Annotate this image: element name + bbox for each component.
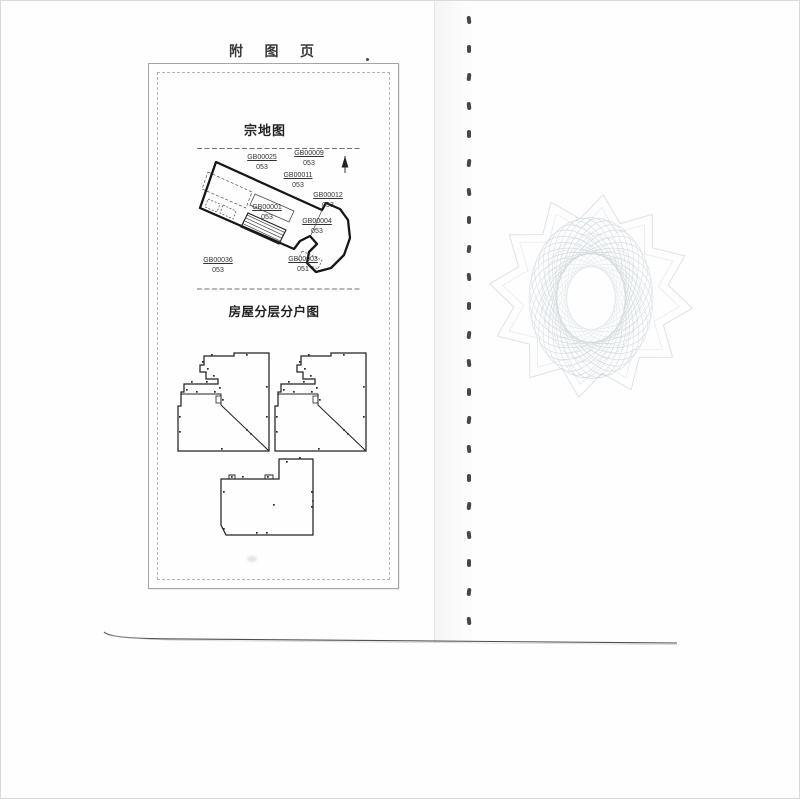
- parcel-id: GB00004: [297, 217, 337, 227]
- stitch-mark: [467, 16, 472, 24]
- parcel-id: GB00036: [198, 256, 238, 266]
- ink-speck: [366, 58, 369, 61]
- stitch-mark: [467, 216, 471, 224]
- stitch-mark: [467, 102, 472, 110]
- parcel-number: 053: [297, 227, 337, 237]
- parcel-number: 053: [289, 159, 329, 169]
- stitch-mark: [467, 273, 472, 281]
- floor-plan-drawing: [166, 341, 381, 571]
- parcel-label: GB00012 053: [308, 191, 348, 211]
- unit-plan-bottom: [221, 459, 314, 535]
- parcel-id: GB00003: [283, 255, 323, 265]
- page-edge-lines: [1, 1, 800, 799]
- binding-fold: [434, 1, 477, 643]
- stitch-mark: [467, 45, 471, 53]
- stitch-mark: [467, 474, 471, 482]
- scan-smudge: [247, 556, 257, 562]
- parcel-id: GB00001: [247, 203, 287, 213]
- bottom-page-edge: [104, 632, 677, 643]
- stitch-mark: [467, 559, 471, 567]
- stitch-mark: [467, 616, 472, 624]
- stitch-mark: [467, 187, 472, 195]
- scanned-certificate-page: 附 图 页 宗地图 GB00025 053 GB00: [0, 0, 800, 799]
- stitch-mark: [467, 445, 472, 453]
- parcel-label: GB00003 051: [283, 255, 323, 275]
- parcel-label: GB00009 053: [289, 149, 329, 169]
- guilloche-watermark: [479, 176, 709, 416]
- parcel-number: 053: [278, 181, 318, 191]
- parcel-id: GB00025: [242, 153, 282, 163]
- parcel-number: 053: [198, 266, 238, 276]
- unit-plan-left: [178, 353, 269, 451]
- stitch-mark: [467, 130, 471, 138]
- parcel-label: GB00025 053: [242, 153, 282, 173]
- parcel-id: GB00012: [308, 191, 348, 201]
- north-arrow-icon: [342, 156, 349, 173]
- stitch-mark: [467, 531, 472, 539]
- parcel-number: 051: [283, 265, 323, 275]
- floor-plan-title: 房屋分层分户图: [194, 301, 354, 320]
- parcel-number: 053: [242, 163, 282, 173]
- parcel-label: GB00001 053: [247, 203, 287, 223]
- page-title: 附 图 页: [229, 41, 323, 61]
- parcel-map-title: 宗地图: [194, 120, 336, 139]
- parcel-number: 053: [247, 213, 287, 223]
- parcel-id: GB00009: [289, 149, 329, 159]
- parcel-label: GB00004 053: [297, 217, 337, 237]
- stitch-mark: [467, 302, 471, 310]
- dimension-marks: [179, 354, 365, 534]
- parcel-number: 053: [308, 201, 348, 211]
- parcel-label: GB00036 053: [198, 256, 238, 276]
- parcel-id: GB00011: [278, 171, 318, 181]
- stitch-mark: [467, 388, 471, 396]
- stitch-mark: [467, 359, 472, 367]
- unit-plan-right: [275, 353, 366, 451]
- parcel-label: GB00011 053: [278, 171, 318, 191]
